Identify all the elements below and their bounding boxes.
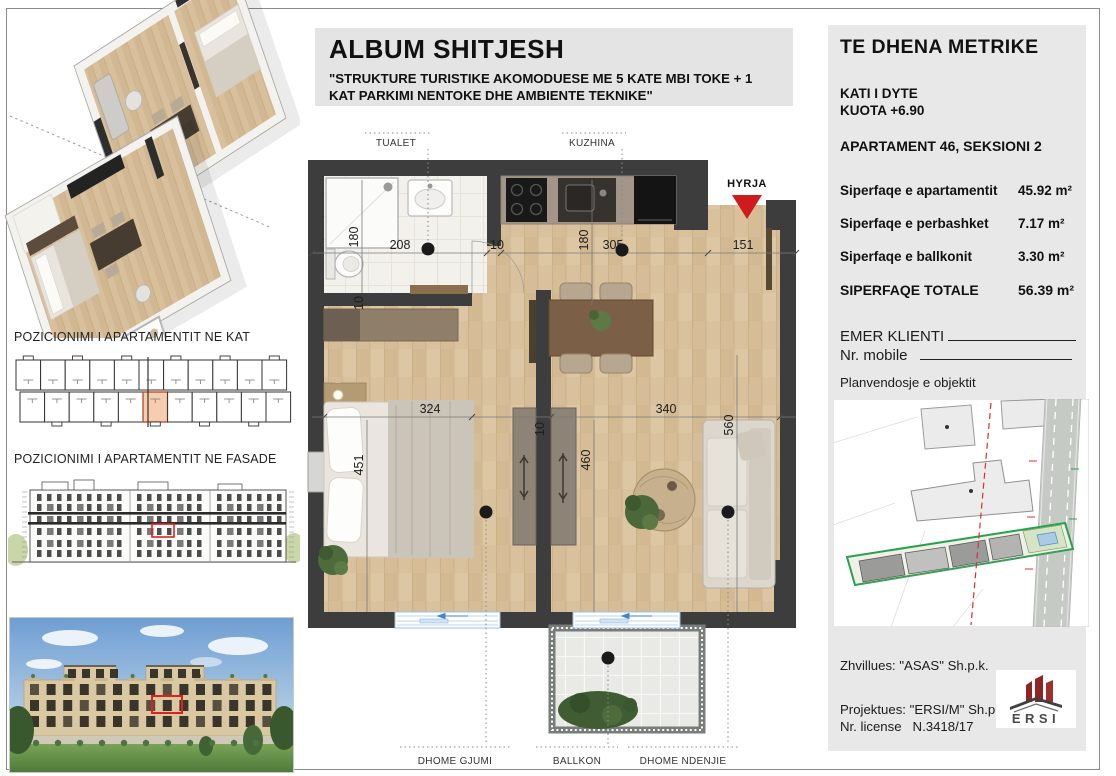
svg-text:451: 451 [352,455,366,476]
sales-album-page: POZICIONIMI I APARTAMENTIT NE KAT POZICI… [0,0,1116,776]
svg-text:208: 208 [390,238,411,252]
entrance-label: HYRJA [727,178,767,190]
developer-line: Zhvillues: "ASAS" Sh.p.k. [840,658,989,673]
floor-line: KATI I DYTE [840,86,918,101]
entry-door-leaf [766,228,772,290]
svg-text:10: 10 [533,422,547,436]
building-exterior-render [10,618,293,772]
svg-text:10: 10 [352,296,366,310]
svg-text:180: 180 [577,230,591,251]
floor-position-diagram [10,352,295,434]
elevation-line: KUOTA +6.90 [840,103,924,118]
client-name-blank [948,327,1076,341]
svg-text:340: 340 [656,402,677,416]
ersi-logo-icon: ERSI [996,670,1076,728]
area-row-total: SIPERFAQE TOTALE 56.39 m² [840,282,1078,298]
bedroom-label: DHOME GJUMI [418,756,492,767]
kitchen-counter [501,176,676,224]
apartment-floor-plan: 208 10 305 151 180 180 10 324 340 451 46… [300,125,820,776]
bathroom-label: TUALET [376,138,416,149]
svg-text:151: 151 [733,238,754,252]
apartment-3d-renders [0,0,300,338]
area-row: Siperfaqe e ballkonit 3.30 m² [840,249,1078,264]
album-title: ALBUM SHITJESH [329,34,779,65]
floor-position-label: POZICIONIMI I APARTAMENTIT NE KAT [14,330,250,344]
interior-door-leaf [529,300,536,363]
svg-text:560: 560 [722,415,736,436]
ersi-logo-box: ERSI [996,670,1076,728]
balcony [552,628,702,730]
client-name-row: EMER KLIENTI [840,327,1076,345]
svg-text:10: 10 [490,238,504,252]
facade-position-label: POZICIONIMI I APARTAMENTIT NE FASADE [14,452,277,466]
album-subtitle: "STRUKTURE TURISTIKE AKOMODUESE ME 5 KAT… [329,70,779,105]
area-row: Siperfaqe e perbashket 7.17 m² [840,216,1078,231]
sliding-door-balcony [573,612,680,628]
bedroom-window [308,452,324,492]
svg-text:180: 180 [347,227,361,248]
sliding-window-bedroom [395,612,500,628]
siteplan-label: Planvendosje e objektit [840,375,976,390]
apartment-line: APARTAMENT 46, SEKSIONI 2 [840,138,1042,154]
title-block: ALBUM SHITJESH "STRUKTURE TURISTIKE AKOM… [315,28,793,106]
license-line: Nr. license N.3418/17 [840,719,973,734]
facade-elevation-drawing [8,472,300,576]
svg-text:324: 324 [420,402,441,416]
kitchen-label: KUZHINA [569,138,615,149]
svg-text:ERSI: ERSI [1012,711,1060,726]
living-label: DHOME NDENJIE [640,756,727,767]
siteplan-box [833,399,1089,627]
site-plan-drawing [833,399,1089,627]
mobile-blank [920,346,1072,360]
metrics-heading: TE DHENA METRIKE [840,36,1039,59]
mobile-row: Nr. mobile [840,346,1072,364]
svg-text:460: 460 [579,450,593,471]
area-row: Siperfaqe e apartamentit 45.92 m² [840,183,1078,198]
balcony-label: BALLKON [553,756,601,767]
designer-line: Projektues: "ERSI/M" Sh.p.k. [840,702,1009,717]
